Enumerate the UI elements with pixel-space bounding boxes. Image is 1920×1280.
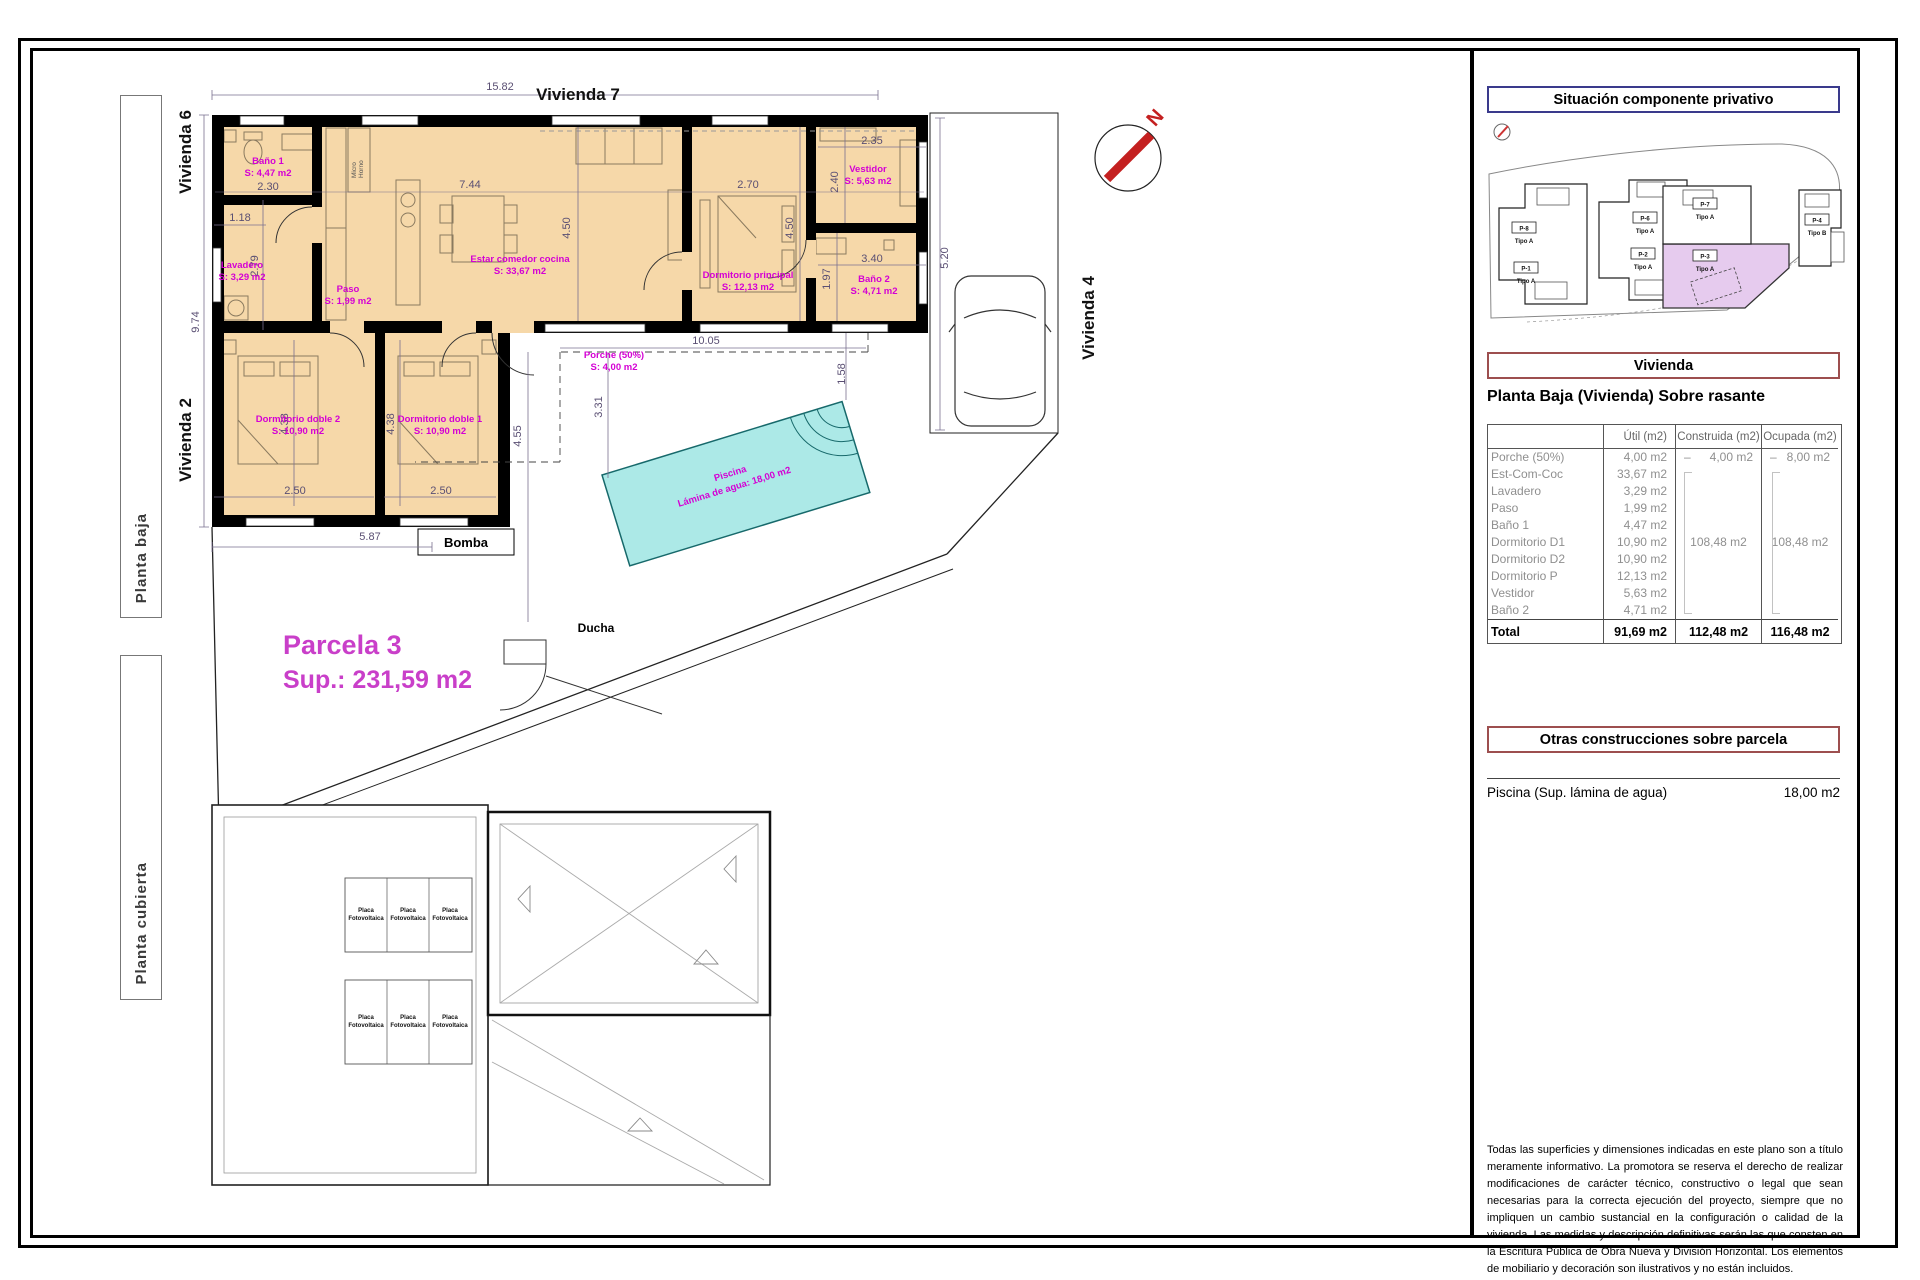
- site-roof-window: [1637, 182, 1665, 197]
- room-bano1-name: Baño 1: [252, 156, 284, 167]
- unit-tipo: Tipo A: [1696, 215, 1715, 221]
- total-construida: 112,48 m2: [1675, 619, 1761, 643]
- solar-panel-label: Fotovoltaica: [348, 1023, 384, 1029]
- room-dormitorio-doble1-area: S: 10,90 m2: [414, 426, 466, 437]
- dim-4-55: 4.55: [512, 425, 524, 446]
- dim-10-05: 10.05: [692, 335, 720, 347]
- dim-2-70: 2.70: [737, 179, 758, 191]
- solar-panel-label: Fotovoltaica: [390, 1023, 426, 1029]
- unit-id: P-3: [1700, 255, 1710, 261]
- room-dormitorio-doble2-area: S: 10,90 m2: [272, 426, 324, 437]
- unit-tipo: Tipo A: [1636, 229, 1655, 235]
- piscina-item: Piscina (Sup. lámina de agua): [1487, 785, 1667, 800]
- shower: Ducha: [500, 621, 662, 714]
- room-dormitorio-principal-area: S: 12,13 m2: [722, 282, 774, 293]
- room-paso-name: Paso: [337, 284, 360, 295]
- solar-panel-label: Fotovoltaica: [432, 1023, 468, 1029]
- col-header-construida: Construida (m2): [1675, 425, 1761, 449]
- row-util: 10,90 m2: [1603, 551, 1675, 568]
- north-letter: N: [1143, 105, 1169, 130]
- dim-2-40: 2.40: [829, 171, 841, 192]
- ducha-label: Ducha: [578, 621, 615, 635]
- room-porche-name: Porche (50%): [584, 350, 644, 361]
- solar-panel-label: Fotovoltaica: [348, 916, 384, 922]
- vivienda-title: Vivienda: [1634, 358, 1693, 374]
- solar-panel-label: Fotovoltaica: [390, 916, 426, 922]
- solar-panel-label: Placa: [400, 908, 416, 914]
- kitchen-unit-labels: Micro Horno: [351, 160, 365, 178]
- north-arrow: N: [1095, 105, 1169, 191]
- dim-3-40: 3.40: [861, 253, 882, 265]
- row-util: 4,71 m2: [1603, 602, 1675, 619]
- dim-3-31: 3.31: [593, 396, 605, 417]
- piscina-row: Piscina (Sup. lámina de agua) 18,00 m2: [1487, 778, 1840, 800]
- row-ocupada: – 8,00 m2: [1761, 449, 1838, 466]
- room-bano1-area: S: 4,47 m2: [245, 168, 292, 179]
- unit-tipo: Tipo A: [1696, 267, 1715, 273]
- dim-5-20: 5.20: [939, 247, 951, 268]
- situacion-title-box: Situación componente privativo: [1487, 86, 1840, 113]
- value: 4,00 m2: [1710, 449, 1753, 466]
- neighbor-vivienda-2: Vivienda 2: [176, 398, 195, 482]
- row-util: 4,00 m2: [1603, 449, 1675, 466]
- site-parcel-3-highlight: [1663, 244, 1789, 308]
- neighbor-vivienda-7: Vivienda 7: [536, 85, 620, 104]
- dim-5-87: 5.87: [359, 531, 380, 543]
- unit-id: P-6: [1640, 217, 1650, 223]
- total-ocupada: 116,48 m2: [1761, 619, 1838, 643]
- row-name: Dormitorio P: [1488, 568, 1603, 585]
- unit-id: P-7: [1700, 203, 1710, 209]
- parcela-area: Sup.: 231,59 m2: [283, 666, 472, 694]
- row-name: Lavadero: [1488, 483, 1603, 500]
- solar-panel-label: Placa: [358, 1015, 374, 1021]
- room-vestidor-area: S: 5,63 m2: [845, 176, 892, 187]
- site-plan: P-8 Tipo A P-1 Tipo A P-6 Tipo A P-2 Tip…: [1487, 116, 1845, 334]
- row-name: Baño 1: [1488, 517, 1603, 534]
- room-vestidor-name: Vestidor: [849, 164, 887, 175]
- solar-panel-label: Placa: [442, 1015, 458, 1021]
- dim-1-18: 1.18: [229, 212, 250, 224]
- room-lavadero-area: S: 3,29 m2: [219, 272, 266, 283]
- row-util: 1,99 m2: [1603, 500, 1675, 517]
- unit-tipo: Tipo A: [1517, 279, 1536, 285]
- row-name: Paso: [1488, 500, 1603, 517]
- site-roof-window: [1805, 194, 1829, 207]
- unit-id: P-4: [1812, 219, 1822, 225]
- dim-9-74: 9.74: [190, 311, 202, 332]
- room-bano2-area: S: 4,71 m2: [851, 286, 898, 297]
- roof-plan: Placa Fotovoltaica Placa Fotovoltaica Pl…: [212, 805, 770, 1185]
- row-util: 5,63 m2: [1603, 585, 1675, 602]
- row-util: 4,47 m2: [1603, 517, 1675, 534]
- row-util: 12,13 m2: [1603, 568, 1675, 585]
- unit-tipo: Tipo B: [1808, 231, 1827, 237]
- horno-label: Horno: [358, 160, 365, 178]
- solar-panel-label: Fotovoltaica: [432, 916, 468, 922]
- plan-sheet: Planta baja Planta cubierta: [0, 0, 1920, 1280]
- ocupada-bracket: [1772, 472, 1780, 614]
- site-north-icon: [1494, 124, 1510, 140]
- room-dormitorio-doble1-name: Dormitorio doble 1: [398, 414, 483, 425]
- site-roof-window: [1831, 232, 1844, 262]
- dim-1-97: 1.97: [821, 268, 833, 289]
- dim-2-30: 2.30: [257, 181, 278, 193]
- room-paso-area: S: 1,99 m2: [325, 296, 372, 307]
- dim-2-50-b: 2.50: [430, 485, 451, 497]
- solar-panel-label: Placa: [442, 908, 458, 914]
- room-dormitorio-principal-name: Dormitorio principal: [703, 270, 794, 281]
- car: [949, 276, 1051, 426]
- row-name: Dormitorio D2: [1488, 551, 1603, 568]
- table-subtitle: Planta Baja (Vivienda) Sobre rasante: [1487, 388, 1840, 406]
- solar-panel-label: Placa: [358, 908, 374, 914]
- site-roof-window: [1635, 280, 1663, 295]
- room-lavadero-name: Lavadero: [221, 260, 263, 271]
- dim-7-44: 7.44: [459, 179, 480, 191]
- otras-title: Otras construcciones sobre parcela: [1540, 732, 1787, 748]
- situacion-title: Situación componente privativo: [1554, 92, 1774, 108]
- unit-tipo: Tipo A: [1515, 239, 1534, 245]
- piscina-value: 18,00 m2: [1784, 785, 1840, 800]
- col-header-util: Útil (m2): [1603, 425, 1675, 449]
- parcela-name: Parcela 3: [283, 630, 402, 660]
- site-roof-window: [1535, 282, 1567, 299]
- bomba-label: Bomba: [444, 535, 489, 550]
- row-name: Porche (50%): [1488, 449, 1603, 466]
- row-util: 3,29 m2: [1603, 483, 1675, 500]
- row-util: 33,67 m2: [1603, 466, 1675, 483]
- neighbor-vivienda-6: Vivienda 6: [176, 110, 195, 194]
- col-header-empty: [1488, 425, 1603, 449]
- room-estar-area: S: 33,67 m2: [494, 266, 546, 277]
- dim-4-38-b: 4.38: [385, 413, 397, 434]
- dim-4-50-a: 4.50: [561, 217, 573, 238]
- row-name: Vestidor: [1488, 585, 1603, 602]
- dash: –: [1684, 449, 1691, 466]
- panel-divider: [1470, 48, 1474, 1238]
- otras-title-box: Otras construcciones sobre parcela: [1487, 726, 1840, 753]
- unit-tipo: Tipo A: [1634, 265, 1653, 271]
- dim-4-50-b: 4.50: [784, 217, 796, 238]
- room-porche-area: S: 4,00 m2: [591, 362, 638, 373]
- unit-id: P-1: [1521, 267, 1531, 273]
- value: 8,00 m2: [1787, 449, 1830, 466]
- construida-bracket: [1684, 472, 1692, 614]
- north-needle: [1107, 135, 1151, 179]
- disclaimer-text: Todas las superficies y dimensiones indi…: [1487, 1142, 1843, 1278]
- row-name: Est-Com-Coc: [1488, 466, 1603, 483]
- areas-table: Útil (m2) Construida (m2) Ocupada (m2) P…: [1487, 424, 1842, 644]
- room-bano2-name: Baño 2: [858, 274, 890, 285]
- neighbor-vivienda-4: Vivienda 4: [1079, 276, 1098, 360]
- unit-id: P-8: [1519, 227, 1529, 233]
- pool: Piscina Lámina de agua: 18,00 m2: [602, 402, 870, 566]
- total-util: 91,69 m2: [1603, 619, 1675, 643]
- room-estar-name: Estar comedor cocina: [470, 254, 570, 265]
- dim-1-58: 1.58: [836, 363, 848, 384]
- micro-label: Micro: [351, 162, 358, 178]
- vivienda-title-box: Vivienda: [1487, 352, 1840, 379]
- dim-15-82: 15.82: [486, 81, 514, 93]
- row-name: Dormitorio D1: [1488, 534, 1603, 551]
- floor-plan-drawing: Piscina Lámina de agua: 18,00 m2 Ducha B…: [0, 0, 1470, 1280]
- room-dormitorio-doble2-name: Dormitorio doble 2: [256, 414, 340, 425]
- total-label: Total: [1488, 619, 1603, 643]
- dim-2-35: 2.35: [861, 135, 882, 147]
- col-header-ocupada: Ocupada (m2): [1761, 425, 1838, 449]
- row-util: 10,90 m2: [1603, 534, 1675, 551]
- unit-id: P-2: [1638, 253, 1648, 259]
- site-roof-window: [1537, 188, 1569, 205]
- row-construida: – 4,00 m2: [1675, 449, 1761, 466]
- row-name: Baño 2: [1488, 602, 1603, 619]
- solar-panel-label: Placa: [400, 1015, 416, 1021]
- dim-2-50-a: 2.50: [284, 485, 305, 497]
- dash: –: [1770, 449, 1777, 466]
